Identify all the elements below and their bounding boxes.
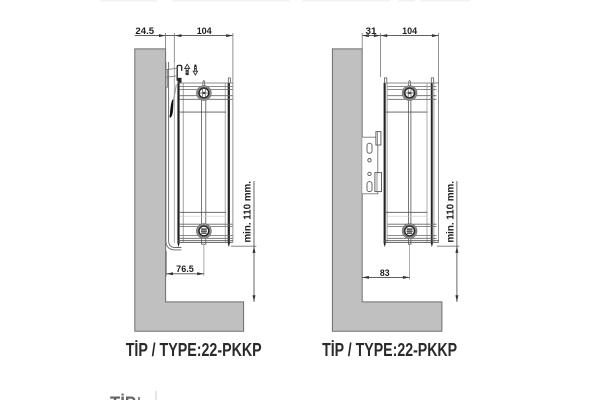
svg-text:min. 110 mm.: min. 110 mm. (445, 181, 456, 243)
svg-text:24.5: 24.5 (135, 26, 154, 36)
svg-text:104: 104 (402, 26, 417, 36)
svg-text:83: 83 (380, 268, 390, 278)
svg-text:min. 110 mm.: min. 110 mm. (242, 181, 253, 243)
svg-text:TİP: TİP (110, 393, 136, 400)
svg-text:TİP / TYPE:22-PKKP: TİP / TYPE:22-PKKP (322, 339, 457, 360)
svg-text:TİP / TYPE:22-PKKP: TİP / TYPE:22-PKKP (126, 339, 262, 360)
svg-text:31: 31 (366, 26, 377, 36)
svg-text:104: 104 (197, 26, 212, 36)
svg-text:76.5: 76.5 (176, 264, 194, 274)
